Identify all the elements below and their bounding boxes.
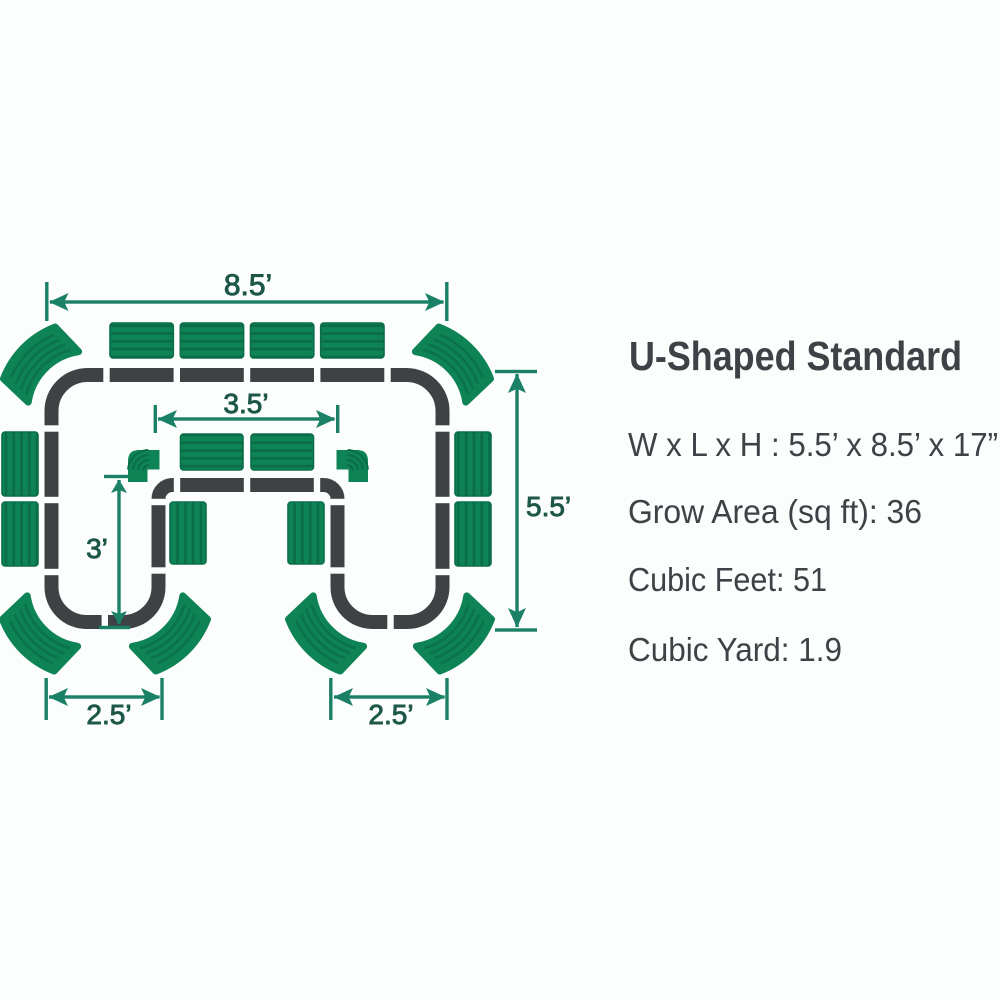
svg-text:3’: 3’ bbox=[86, 533, 108, 564]
svg-text:3.5’: 3.5’ bbox=[223, 388, 268, 419]
svg-text:W x L x H : 5.5’ x 8.5’ x 17”: W x L x H : 5.5’ x 8.5’ x 17” bbox=[628, 426, 998, 463]
svg-text:Grow Area (sq ft): 36: Grow Area (sq ft): 36 bbox=[628, 493, 922, 530]
svg-text:5.5’: 5.5’ bbox=[526, 491, 571, 522]
svg-text:2.5’: 2.5’ bbox=[368, 699, 413, 730]
svg-text:8.5’: 8.5’ bbox=[224, 269, 272, 302]
svg-text:U-Shaped Standard: U-Shaped Standard bbox=[629, 333, 962, 379]
svg-text:2.5’: 2.5’ bbox=[86, 699, 131, 730]
svg-text:Cubic Yard: 1.9: Cubic Yard: 1.9 bbox=[628, 631, 842, 668]
svg-text:Cubic Feet: 51: Cubic Feet: 51 bbox=[628, 561, 827, 598]
